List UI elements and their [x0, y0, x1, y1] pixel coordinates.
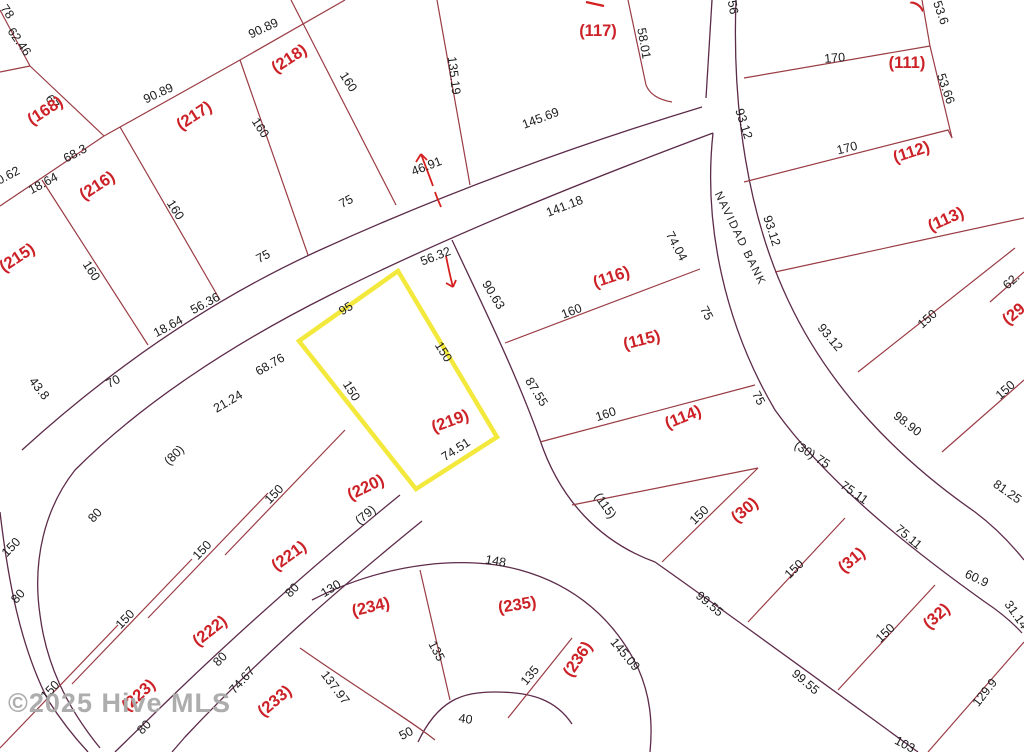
lot-line	[0, 66, 30, 72]
plat-map-image: 62.46786790.8990.89160160160160135.1958.…	[0, 0, 1024, 752]
dimension-label: 56.36	[188, 290, 222, 317]
dimension-label: 68.3	[61, 142, 89, 166]
parcel-number-label: (115)	[621, 327, 662, 354]
parcel-number-label: (113)	[925, 204, 967, 236]
dimension-label: 80	[210, 649, 230, 669]
parcel-number-label: (235)	[497, 593, 538, 617]
dimension-label: 135	[425, 639, 447, 664]
dimension-label: 78	[0, 2, 17, 21]
dimension-label: 70	[104, 372, 123, 391]
dimension-label: 58.01	[634, 27, 653, 60]
dimension-label: 75.11	[892, 522, 924, 552]
red-line-fragment	[586, 2, 604, 6]
dimension-label: 68.76	[253, 351, 287, 379]
watermark: ©2025 Hive MLS	[8, 688, 231, 719]
dimension-label: 18.64	[26, 170, 60, 197]
parcel-number-label: (30)	[728, 494, 762, 527]
lot-line	[104, 0, 345, 136]
parcel-number-label: (221)	[268, 537, 310, 574]
dimension-label: (80)	[161, 442, 187, 468]
parcel-number-label: (217)	[173, 98, 215, 134]
lot-line	[291, 0, 396, 205]
dimension-label: 62.	[1000, 270, 1022, 292]
dimension-label: 18.64	[151, 313, 185, 340]
dimension-label: 93.12	[732, 107, 755, 141]
dimension-label: 145.69	[520, 105, 561, 132]
dimension-label: 75	[697, 304, 716, 323]
parcel-number-label: (220)	[345, 471, 388, 504]
dimension-label: 53.66	[934, 72, 957, 106]
dimension-label: 160	[249, 115, 272, 140]
lot-line	[300, 648, 435, 740]
dimension-label: 0.62	[0, 164, 22, 188]
parcel-number-label: (233)	[254, 682, 295, 721]
dimension-label: 135.19	[445, 56, 464, 96]
parcel-number-label: (218)	[268, 41, 310, 77]
dimension-label: 31.14	[1002, 598, 1024, 632]
dimension-label: 150	[782, 557, 807, 582]
dimension-label: 75.11	[838, 478, 871, 507]
parcel-number-label: (31)	[835, 544, 869, 577]
dimension-label: 93.12	[815, 321, 846, 354]
dimension-label: 130	[318, 577, 343, 600]
dimension-label: 137.97	[318, 668, 352, 707]
plat-map-svg: 62.46786790.8990.89160160160160135.1958.…	[0, 0, 1024, 752]
parcel-number-label: (116)	[591, 263, 632, 292]
parcel-number-label: (222)	[189, 612, 230, 650]
dimension-label: 80	[134, 717, 154, 737]
dimension-label: 99.55	[789, 667, 822, 698]
dimension-label: 75	[337, 192, 356, 211]
dimension-label: 53.6	[930, 0, 951, 27]
parcel-number-label: (117)	[579, 22, 617, 40]
dimension-label: 56	[725, 0, 741, 15]
red-markers	[416, 2, 604, 287]
dimension-label: 60.9	[963, 567, 991, 590]
parcel-number-label: (112)	[891, 138, 932, 167]
road-edge	[735, 0, 1024, 560]
dimension-label: 80	[282, 580, 302, 600]
dimension-label: 21.24	[211, 388, 245, 416]
dimension-label: 80	[85, 505, 105, 525]
dimension-label: 98.90	[891, 409, 924, 439]
parcel-number-label: )	[908, 0, 926, 13]
lot-line	[240, 60, 308, 255]
dimension-label: 99.55	[693, 589, 726, 620]
dimension-label: 150	[993, 378, 1018, 402]
dimension-label: 90.89	[141, 80, 175, 106]
dimension-label: 74.04	[663, 229, 690, 263]
road-edge	[312, 563, 651, 752]
dimension-label: 150	[262, 482, 287, 507]
dimension-label: 160	[337, 69, 360, 94]
dimension-labels: 62.46786790.8990.89160160160160135.1958.…	[0, 0, 1024, 752]
dimension-label: 40	[458, 711, 474, 727]
dimension-label: (79)	[352, 502, 378, 527]
dimension-label: (30) 75	[792, 438, 833, 471]
dimension-label: 150	[190, 538, 215, 563]
dimension-label: 129.9	[970, 676, 1000, 709]
lot-line	[858, 248, 1015, 372]
dimension-label: 150	[873, 621, 898, 646]
parcel-number-label: (29	[999, 300, 1024, 329]
dimension-label: 145.09	[607, 635, 642, 673]
dimension-label: 90.89	[246, 15, 280, 41]
road-edge	[655, 562, 918, 752]
cul-de-sac-arc	[418, 692, 572, 742]
dimension-label: 160	[164, 197, 187, 222]
dimension-label: 46.91	[409, 154, 443, 178]
lot-line	[148, 493, 268, 618]
parcel-number-label: (219)	[429, 406, 471, 436]
highlighted-lot-219	[299, 271, 497, 489]
dimension-label: 75	[254, 247, 273, 266]
marker-arrow-tail	[435, 192, 441, 207]
parcel-number-label: (114)	[662, 402, 704, 433]
parcel-number-label: (236)	[560, 638, 596, 680]
dimension-label: 62.46	[5, 25, 34, 59]
dimension-label: 93.12	[760, 214, 783, 248]
street-name-label: NAVIDAD BANK	[712, 190, 768, 288]
dimension-label: 43.8	[26, 375, 52, 403]
dimension-label: 170	[824, 50, 846, 66]
parcel-number-label: (32)	[920, 600, 954, 633]
dimension-label: 135	[518, 663, 542, 688]
marker-arrow-down	[446, 256, 453, 287]
dimension-label: 160	[559, 301, 584, 322]
parcel-number-label: (111)	[889, 54, 926, 72]
dimension-label: 160	[80, 258, 103, 283]
dimension-label: 50	[397, 724, 416, 743]
parcel-number-label: (215)	[0, 240, 38, 276]
lot-line	[420, 570, 450, 700]
dimension-label: 160	[594, 404, 618, 424]
dimension-label: (115)	[591, 490, 619, 521]
lot-boundaries	[0, 0, 1024, 752]
lot-line	[540, 385, 755, 442]
parcel-number-label: (216)	[76, 168, 118, 204]
dimension-label: 81.25	[990, 477, 1024, 506]
dimension-label: 170	[835, 139, 859, 158]
parcel-number-label: (234)	[350, 594, 392, 620]
dimension-label: 80	[8, 586, 28, 606]
dimension-label: 150	[687, 503, 712, 528]
lot-line	[775, 218, 1024, 272]
street-labels: NAVIDAD BANK	[712, 190, 768, 288]
dimension-label: 74.51	[439, 435, 473, 464]
road-edge	[706, 0, 712, 98]
road-edges	[0, 0, 1024, 752]
lot-line	[30, 66, 104, 136]
dimension-label: 150	[113, 607, 138, 632]
dimension-label: 148	[484, 552, 507, 569]
